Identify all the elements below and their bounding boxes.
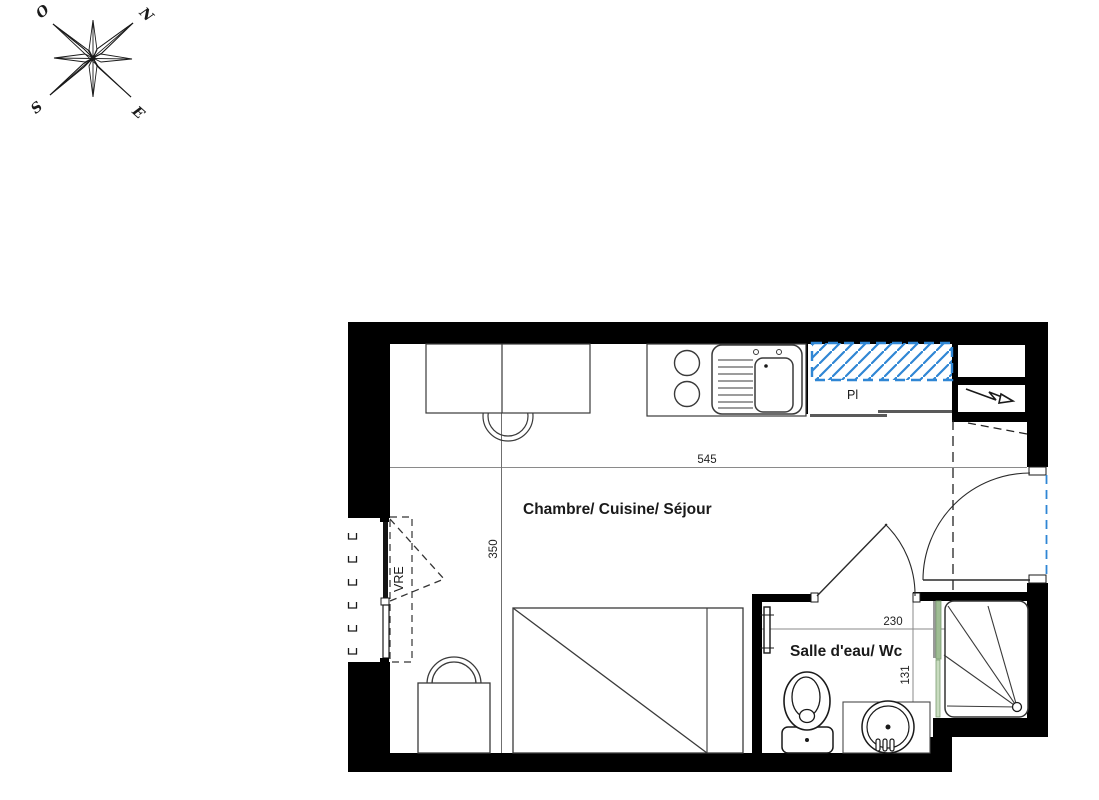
compass-rose: O N S E: [28, 1, 157, 122]
entry-jamb-top: [1029, 467, 1046, 475]
corner-chair-seat: [418, 683, 490, 753]
stove-burner-bottom: [675, 382, 700, 407]
wall-bathroom-top-right: [913, 592, 1027, 601]
entry-door-swing-arc: [923, 473, 1030, 580]
dim-350-label: 350: [488, 539, 500, 558]
duct-box-empty: [958, 345, 1025, 377]
dim-545-label: 545: [697, 454, 716, 466]
sink-faucet-dot: [764, 364, 768, 368]
towel-radiator: [760, 607, 774, 653]
bed-outline: [513, 608, 743, 753]
window-cap-top: [380, 513, 389, 522]
window-vre: VRE: [349, 513, 445, 666]
compass-star: [50, 20, 133, 97]
wall-bathroom-left: [752, 594, 762, 753]
towel-radiator-body: [764, 607, 770, 653]
washbasin-drain-dot: [886, 725, 891, 730]
toilet: [782, 672, 833, 753]
floorplan-drawing: O N S E: [0, 0, 1099, 800]
wall-segment-top: [348, 322, 1048, 344]
window-cap-bottom: [380, 658, 389, 666]
shower-drain: [1013, 703, 1022, 712]
stove-burner-top: [675, 351, 700, 376]
shower-glass-upper: [936, 601, 941, 659]
sink-tap-dot-right: [777, 350, 782, 355]
dining-table: [426, 344, 590, 413]
compass-east-label: E: [128, 103, 148, 123]
entry-dashed-projection: [953, 420, 1027, 590]
kitchen-sink: [712, 345, 802, 414]
compass-south-label: S: [28, 99, 46, 118]
wall-segment-right-lower: [1027, 583, 1048, 737]
closet-sliding-rail-right: [878, 410, 952, 413]
sink-tap-dot-left: [754, 350, 759, 355]
wall-bathroom-top-left: [752, 594, 817, 602]
entry-jamb-bottom: [1029, 575, 1046, 583]
main-room-label: Chambre/ Cuisine/ Séjour: [523, 501, 712, 518]
dashed-diagonal: [968, 423, 1027, 434]
compass-north-label: N: [135, 4, 157, 26]
window-panel-solid: [383, 522, 388, 598]
closet-label: Pl: [847, 388, 858, 402]
balcony-railing: [349, 533, 357, 654]
closet-sliding-rail-left: [810, 414, 887, 417]
bathroom-door-leaf: [817, 524, 887, 596]
kitchen-area: [647, 344, 806, 416]
toilet-flush-dot: [805, 738, 809, 742]
wall-segment-right-upper: [1027, 322, 1048, 467]
shower: [933, 601, 1028, 717]
washbasin-faucet: [876, 739, 894, 751]
shutter-label: VRE: [392, 566, 406, 592]
entry-door: [923, 467, 1047, 583]
compass-west-label: O: [33, 1, 53, 22]
bathroom-door-jamb-right: [913, 593, 920, 602]
dim-131-label: 131: [900, 665, 912, 684]
shower-tray: [945, 601, 1028, 717]
closet-shelf-hatch: [812, 343, 952, 380]
dim-230-label: 230: [883, 616, 902, 628]
shower-glass-lower: [936, 660, 940, 717]
shower-door-rail: [933, 601, 936, 658]
bathroom-label: Salle d'eau/ Wc: [790, 643, 903, 660]
toilet-trap: [800, 710, 815, 723]
washbasin: [843, 701, 930, 753]
window-mullion: [381, 598, 389, 605]
closet-pi: Pl: [810, 343, 952, 417]
bed: [513, 608, 743, 753]
sink-basin: [755, 358, 793, 412]
window-panel-glass: [383, 605, 389, 658]
floorplan-page: O N S E: [0, 0, 1099, 800]
bathroom-door-swing-arc: [885, 524, 915, 596]
bathroom-door-jamb-left: [811, 593, 818, 602]
wall-segment-left-upper: [348, 322, 390, 518]
wall-segment-bottom: [348, 753, 952, 772]
